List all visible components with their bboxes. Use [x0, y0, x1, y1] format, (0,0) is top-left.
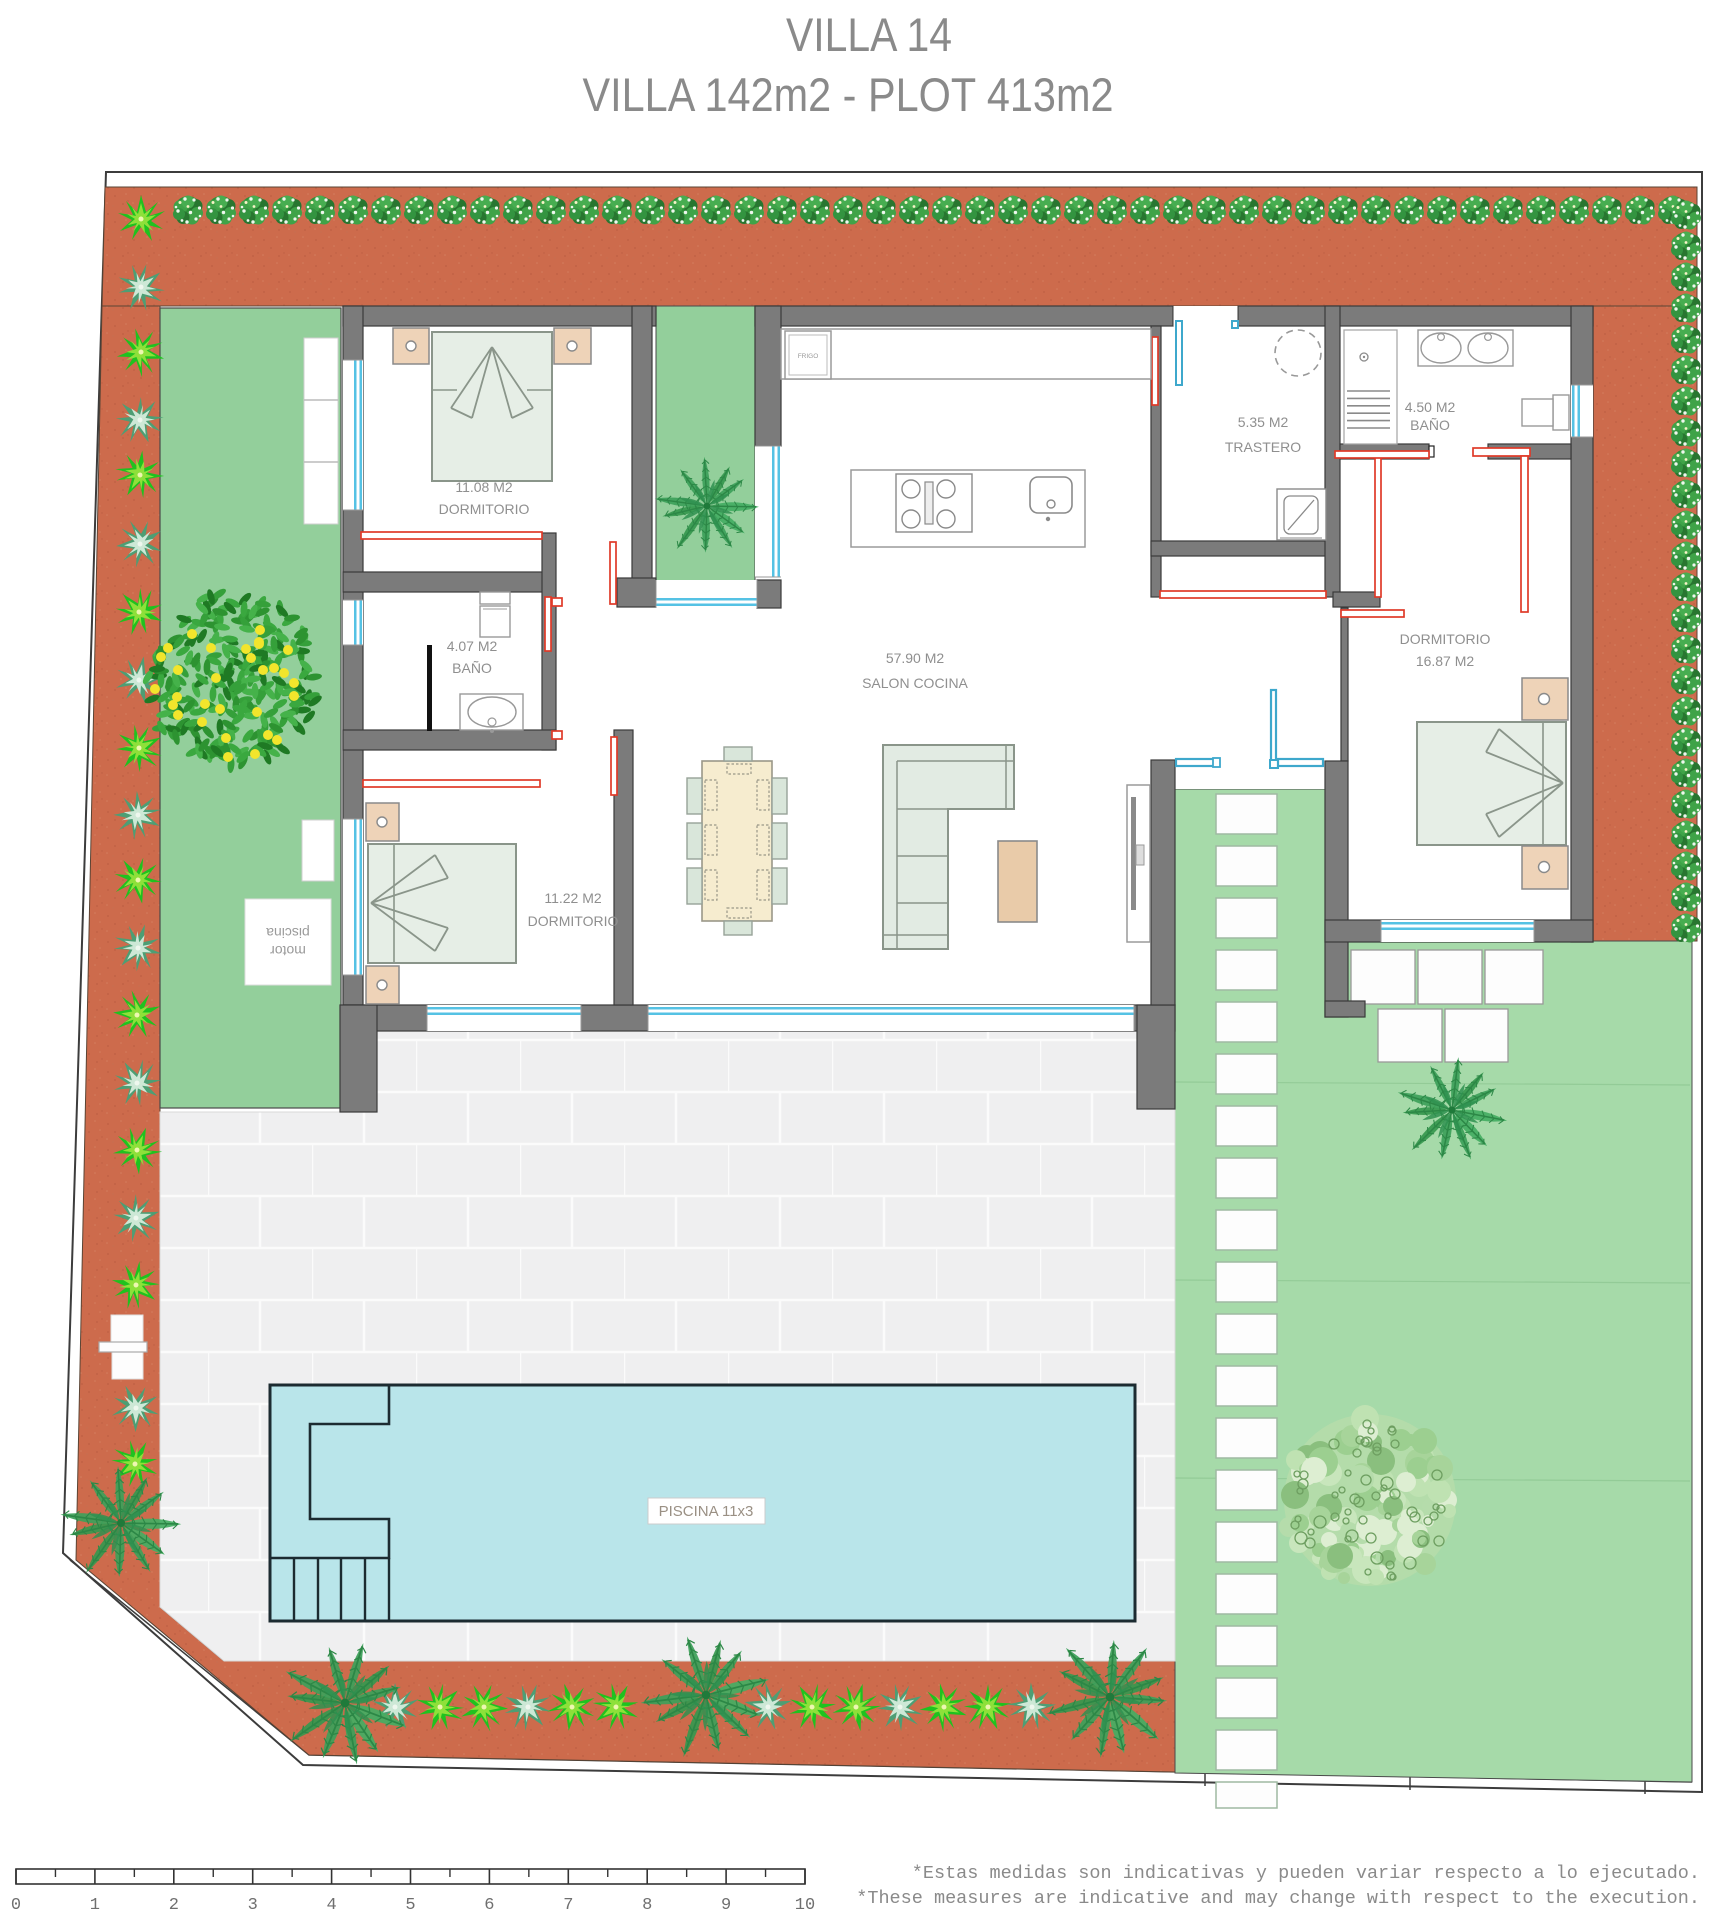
- svg-text:VILLA 14: VILLA 14: [786, 8, 952, 61]
- svg-text:16.87 M2: 16.87 M2: [1416, 653, 1475, 669]
- svg-text:10: 10: [795, 1896, 815, 1915]
- svg-text:motor: motor: [270, 943, 306, 959]
- svg-text:2: 2: [169, 1896, 179, 1915]
- svg-text:11.08 M2: 11.08 M2: [455, 479, 513, 495]
- svg-text:11.22 M2: 11.22 M2: [544, 890, 602, 906]
- svg-text:4: 4: [326, 1896, 336, 1915]
- svg-text:BAÑO: BAÑO: [1410, 417, 1450, 433]
- svg-text:3: 3: [248, 1896, 258, 1915]
- svg-text:1: 1: [90, 1896, 100, 1915]
- svg-text:VILLA 142m2 - PLOT 413m2: VILLA 142m2 - PLOT 413m2: [583, 68, 1114, 121]
- svg-text:*These measures are indicative: *These measures are indicative and may c…: [856, 1888, 1700, 1909]
- svg-text:DORMITORIO: DORMITORIO: [528, 913, 619, 929]
- svg-text:6: 6: [484, 1896, 494, 1915]
- svg-text:57.90 M2: 57.90 M2: [886, 650, 945, 666]
- svg-text:piscina: piscina: [266, 925, 310, 941]
- svg-text:9: 9: [721, 1896, 731, 1915]
- svg-text:0: 0: [11, 1896, 21, 1915]
- svg-text:*Estas medidas son indicativas: *Estas medidas son indicativas y pueden …: [912, 1863, 1700, 1884]
- svg-text:SALON COCINA: SALON COCINA: [862, 675, 968, 691]
- svg-text:7: 7: [563, 1896, 573, 1915]
- svg-text:BAÑO: BAÑO: [452, 660, 492, 676]
- svg-text:5: 5: [405, 1896, 415, 1915]
- svg-text:TRASTERO: TRASTERO: [1225, 439, 1301, 455]
- svg-text:8: 8: [642, 1896, 652, 1915]
- svg-text:4.50 M2: 4.50 M2: [1405, 399, 1456, 415]
- svg-text:FRIGO: FRIGO: [798, 353, 819, 360]
- svg-text:PISCINA 11x3: PISCINA 11x3: [659, 1503, 754, 1520]
- svg-text:DORMITORIO: DORMITORIO: [1400, 631, 1491, 647]
- svg-text:DORMITORIO: DORMITORIO: [439, 501, 530, 517]
- svg-text:5.35 M2: 5.35 M2: [1238, 414, 1289, 430]
- svg-text:4.07 M2: 4.07 M2: [447, 638, 498, 654]
